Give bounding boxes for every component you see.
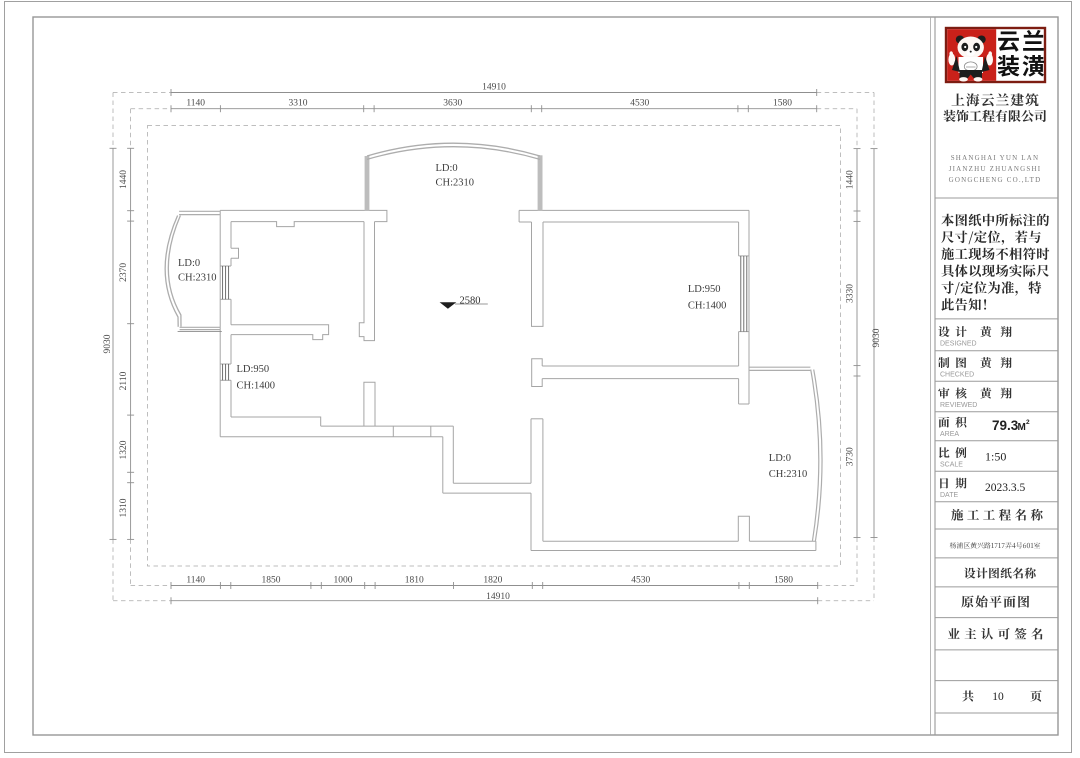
svg-text:LD:950: LD:950 [237, 364, 270, 375]
svg-text:1580: 1580 [773, 99, 792, 109]
svg-text:2023.3.5: 2023.3.5 [985, 482, 1026, 494]
svg-text:CH:1400: CH:1400 [237, 381, 276, 392]
svg-text:3630: 3630 [443, 99, 462, 109]
svg-text:1850: 1850 [262, 576, 281, 586]
svg-text:LD:0: LD:0 [436, 163, 458, 174]
svg-text:CH:1400: CH:1400 [688, 301, 727, 312]
svg-text:4530: 4530 [631, 576, 650, 586]
svg-text:DESIGNED: DESIGNED [940, 341, 977, 348]
svg-text:1810: 1810 [405, 576, 424, 586]
svg-text:2: 2 [1026, 419, 1030, 426]
svg-text:14910: 14910 [486, 592, 510, 602]
svg-text:3730: 3730 [846, 447, 856, 466]
svg-text:1320: 1320 [119, 440, 129, 459]
svg-text:GONGCHENG CO.,LTD: GONGCHENG CO.,LTD [949, 176, 1042, 184]
svg-text:SHANGHAI YUN LAN: SHANGHAI YUN LAN [951, 154, 1040, 162]
svg-text:79.3: 79.3 [992, 418, 1019, 433]
svg-text:2580: 2580 [460, 296, 481, 307]
svg-text:3310: 3310 [289, 99, 308, 109]
svg-text:1000: 1000 [334, 576, 353, 586]
svg-text:M: M [1018, 422, 1026, 433]
svg-text:1310: 1310 [119, 498, 129, 517]
svg-text:1440: 1440 [846, 170, 856, 189]
svg-text:DATE: DATE [940, 492, 958, 499]
svg-text:CHECKED: CHECKED [940, 372, 974, 379]
svg-text:CH:2310: CH:2310 [178, 273, 217, 284]
svg-text:10: 10 [992, 691, 1004, 703]
svg-text:14910: 14910 [482, 83, 506, 93]
svg-text:3330: 3330 [846, 284, 856, 303]
svg-text:1820: 1820 [483, 576, 502, 586]
svg-text:1:50: 1:50 [985, 450, 1006, 464]
svg-text:CH:2310: CH:2310 [436, 178, 475, 189]
svg-text:REVIEWED: REVIEWED [940, 402, 977, 409]
svg-text:1440: 1440 [119, 170, 129, 189]
svg-text:2370: 2370 [119, 263, 129, 282]
svg-text:CH:2310: CH:2310 [769, 469, 808, 480]
svg-text:SCALE: SCALE [940, 462, 963, 469]
svg-text:9030: 9030 [872, 328, 882, 347]
svg-text:JIANZHU ZHUANGSHI: JIANZHU ZHUANGSHI [949, 165, 1042, 173]
svg-text:LD:950: LD:950 [688, 284, 721, 295]
svg-text:AREA: AREA [940, 431, 959, 438]
svg-text:2110: 2110 [119, 371, 129, 390]
svg-text:1140: 1140 [186, 99, 205, 109]
svg-text:LD:0: LD:0 [769, 453, 791, 464]
svg-text:4530: 4530 [630, 99, 649, 109]
svg-text:1580: 1580 [774, 576, 793, 586]
svg-text:1140: 1140 [186, 576, 205, 586]
svg-text:LD:0: LD:0 [178, 258, 200, 269]
svg-text:9030: 9030 [103, 334, 113, 353]
